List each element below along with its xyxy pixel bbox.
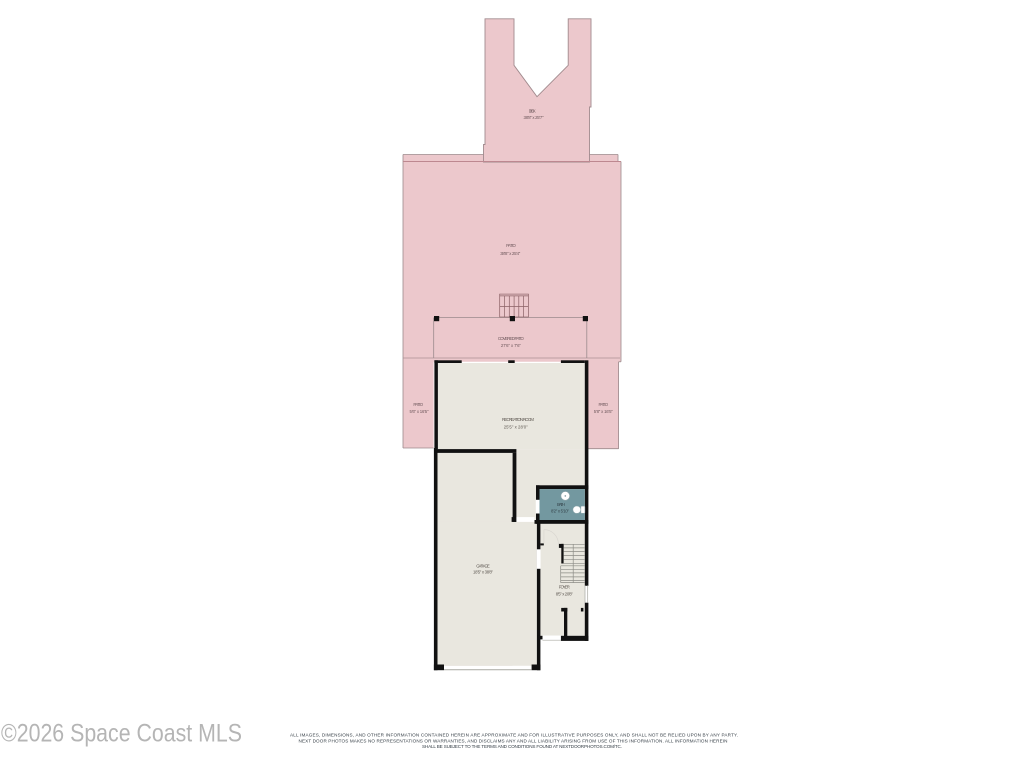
svg-text:BATH: BATH: [557, 502, 565, 507]
svg-text:DECK: DECK: [529, 108, 536, 113]
svg-text:©2026 Space Coast MLS: ©2026 Space Coast MLS: [1, 719, 242, 747]
svg-text:5'6" x 16'5": 5'6" x 16'5": [410, 409, 429, 414]
svg-text:8'5" x 20'8": 8'5" x 20'8": [556, 591, 573, 596]
svg-text:38'8" x 25'7": 38'8" x 25'7": [524, 115, 544, 120]
svg-text:NEXT DOOR PHOTOS MAKES NO REPR: NEXT DOOR PHOTOS MAKES NO REPRESENTATION…: [299, 738, 728, 743]
svg-text:SHALL BE SUBJECT TO THE TERMS: SHALL BE SUBJECT TO THE TERMS AND CONDIT…: [422, 744, 622, 749]
svg-text:27'6" x 7'6": 27'6" x 7'6": [501, 343, 521, 348]
svg-text:ALL IMAGES, DIMENSIONS, AND OT: ALL IMAGES, DIMENSIONS, AND OTHER INFORM…: [290, 733, 738, 738]
svg-text:PATIO: PATIO: [598, 402, 608, 407]
svg-text:PATIO: PATIO: [413, 402, 423, 407]
svg-text:5'8" x 16'5": 5'8" x 16'5": [594, 409, 613, 414]
svg-text:COVERED PATIO: COVERED PATIO: [498, 336, 525, 341]
svg-text:8'2" x 5'10": 8'2" x 5'10": [551, 509, 569, 514]
svg-text:GARAGE: GARAGE: [476, 564, 490, 569]
svg-text:RECREATION ROOM: RECREATION ROOM: [502, 417, 534, 422]
svg-text:25'5" x 28'0": 25'5" x 28'0": [504, 424, 528, 429]
svg-text:38'8" x 25'4": 38'8" x 25'4": [500, 251, 520, 256]
svg-text:FOYER: FOYER: [559, 585, 570, 590]
svg-text:PATIO: PATIO: [506, 243, 516, 248]
svg-text:18'5" x 38'8": 18'5" x 38'8": [473, 570, 493, 575]
